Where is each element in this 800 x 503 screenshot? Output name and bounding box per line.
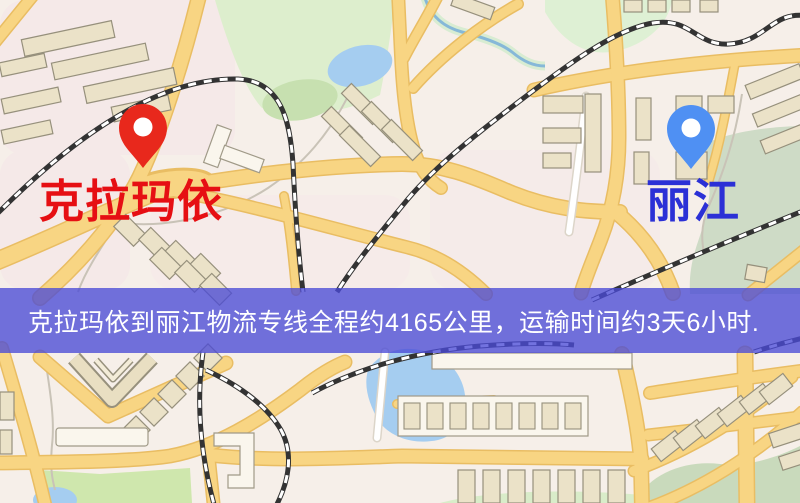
origin-marker[interactable] — [119, 104, 167, 168]
route-info-text: 克拉玛依到丽江物流专线全程约4165公里，运输时间约3天6小时. — [0, 303, 759, 339]
map-pin-icon — [119, 104, 167, 168]
map-pin-icon — [667, 105, 715, 169]
destination-marker[interactable] — [667, 105, 715, 169]
route-info-banner: 克拉玛依到丽江物流专线全程约4165公里，运输时间约3天6小时. — [0, 288, 800, 353]
map-view[interactable]: 克拉玛依 丽江 克拉玛依到丽江物流专线全程约4165公里，运输时间约3天6小时. — [0, 0, 800, 503]
map-background — [0, 0, 800, 503]
origin-city-label: 克拉玛依 — [39, 179, 223, 224]
destination-city-label: 丽江 — [646, 178, 740, 224]
